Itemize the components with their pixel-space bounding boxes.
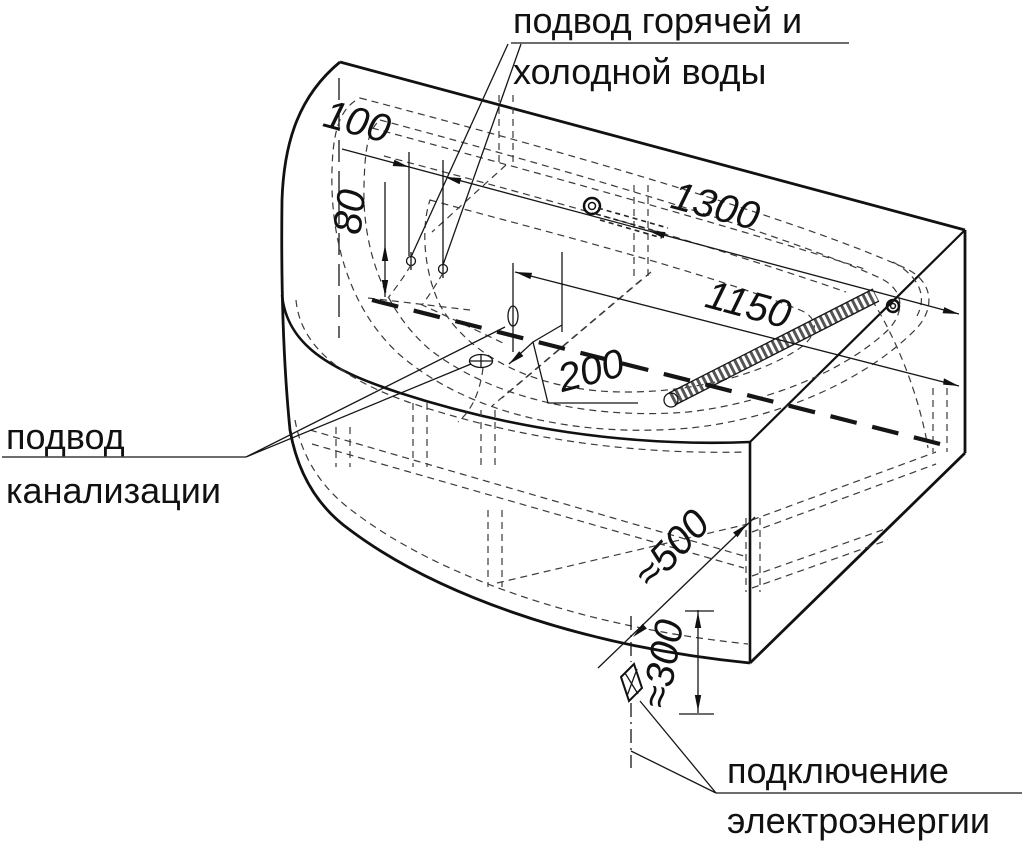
dimension-1300: 1300 bbox=[342, 149, 959, 314]
dim-1300-value: 1300 bbox=[667, 174, 764, 240]
tub-centerline bbox=[372, 300, 948, 446]
dimension-300: ≈300 bbox=[634, 610, 714, 714]
water-supply-label-line1: подвод горячей и bbox=[513, 0, 802, 41]
frame-legs bbox=[336, 95, 947, 592]
callout-sewer: подвод канализации bbox=[2, 327, 505, 511]
callout-electric: подключение электроэнергии bbox=[631, 701, 1022, 841]
drawing-canvas: 1300 100 80 1150 200 bbox=[0, 0, 1023, 844]
dim-100-value: 100 bbox=[319, 92, 395, 152]
bathtub-installation-diagram: 1300 100 80 1150 200 bbox=[0, 0, 1023, 844]
electric-leader-lines bbox=[631, 701, 716, 793]
water-supply-label-line2: холодной воды bbox=[513, 51, 766, 92]
electric-label-line1: подключение bbox=[727, 750, 949, 791]
dimension-100: 100 bbox=[319, 92, 461, 264]
callout-water-supply: подвод горячей и холодной воды bbox=[411, 0, 849, 265]
dim-1150-value: 1150 bbox=[701, 273, 795, 338]
water-leader-lines bbox=[411, 44, 521, 265]
sewer-label-line2: канализации bbox=[6, 470, 221, 511]
dimension-80: 80 bbox=[325, 182, 388, 297]
callouts: подвод горячей и холодной воды подвод ка… bbox=[2, 0, 1022, 841]
fixtures bbox=[368, 198, 899, 768]
sewer-label-line1: подвод bbox=[6, 416, 125, 457]
dimensions: 1300 100 80 1150 200 bbox=[319, 92, 959, 714]
electric-label-line2: электроэнергии bbox=[727, 800, 990, 841]
dim-80-value: 80 bbox=[325, 187, 374, 237]
